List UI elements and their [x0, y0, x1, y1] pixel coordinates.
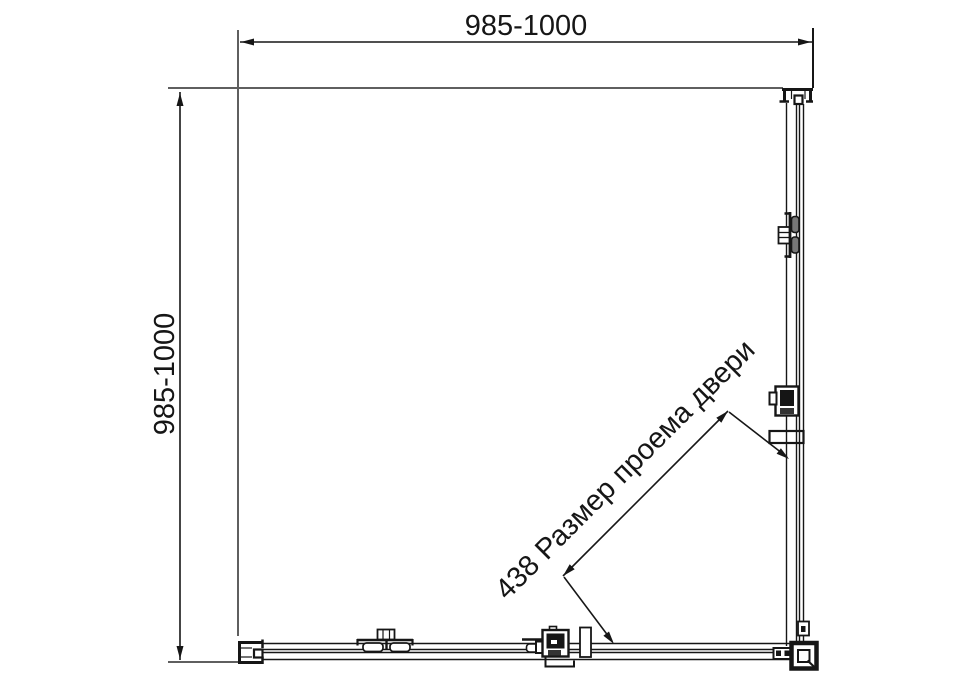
leader-to-right-door: [729, 412, 787, 457]
corner-connector: [774, 643, 818, 670]
bottom-panel-rail: [238, 627, 791, 667]
adjuster-cap: [779, 227, 790, 244]
screw-icon: [785, 651, 790, 657]
roller-assembly-bottom: [357, 630, 413, 652]
arrow-up-icon: [177, 93, 184, 106]
adjuster-cap: [378, 630, 395, 640]
left-dimension: 985-1000: [149, 92, 184, 660]
top-dimension: 985-1000: [240, 10, 812, 46]
diagonal-dimension-label: 438 Размер проема двери: [489, 334, 761, 606]
rail-clip-right: [798, 622, 809, 636]
arrow-left-icon: [241, 39, 254, 46]
right-panel-rail: [770, 88, 814, 646]
top-dimension-label: 985-1000: [465, 10, 588, 42]
roller-icon: [792, 217, 800, 233]
door-stop-tab: [580, 628, 591, 658]
roller-icon: [792, 237, 800, 253]
drawing-canvas: 985-1000 985-1000 438 Размер проема двер…: [0, 0, 970, 686]
technical-drawing-page: 985-1000 985-1000 438 Размер проема двер…: [0, 0, 970, 686]
left-dimension-label: 985-1000: [149, 313, 181, 436]
wall-profile-bottom-left: [238, 640, 263, 665]
arrow-right-icon: [798, 39, 811, 46]
screw-icon: [776, 651, 781, 657]
wall-profile-top-right: [780, 88, 814, 104]
door-carriage-bottom: [522, 627, 591, 667]
roller-icon: [390, 643, 410, 652]
roller-icon: [363, 643, 383, 652]
diagonal-dimension: 438 Размер проема двери: [489, 334, 789, 644]
wall-lines: [168, 28, 813, 662]
arrow-down-icon: [177, 646, 184, 659]
leader-arrow-bottom-icon: [603, 632, 614, 645]
